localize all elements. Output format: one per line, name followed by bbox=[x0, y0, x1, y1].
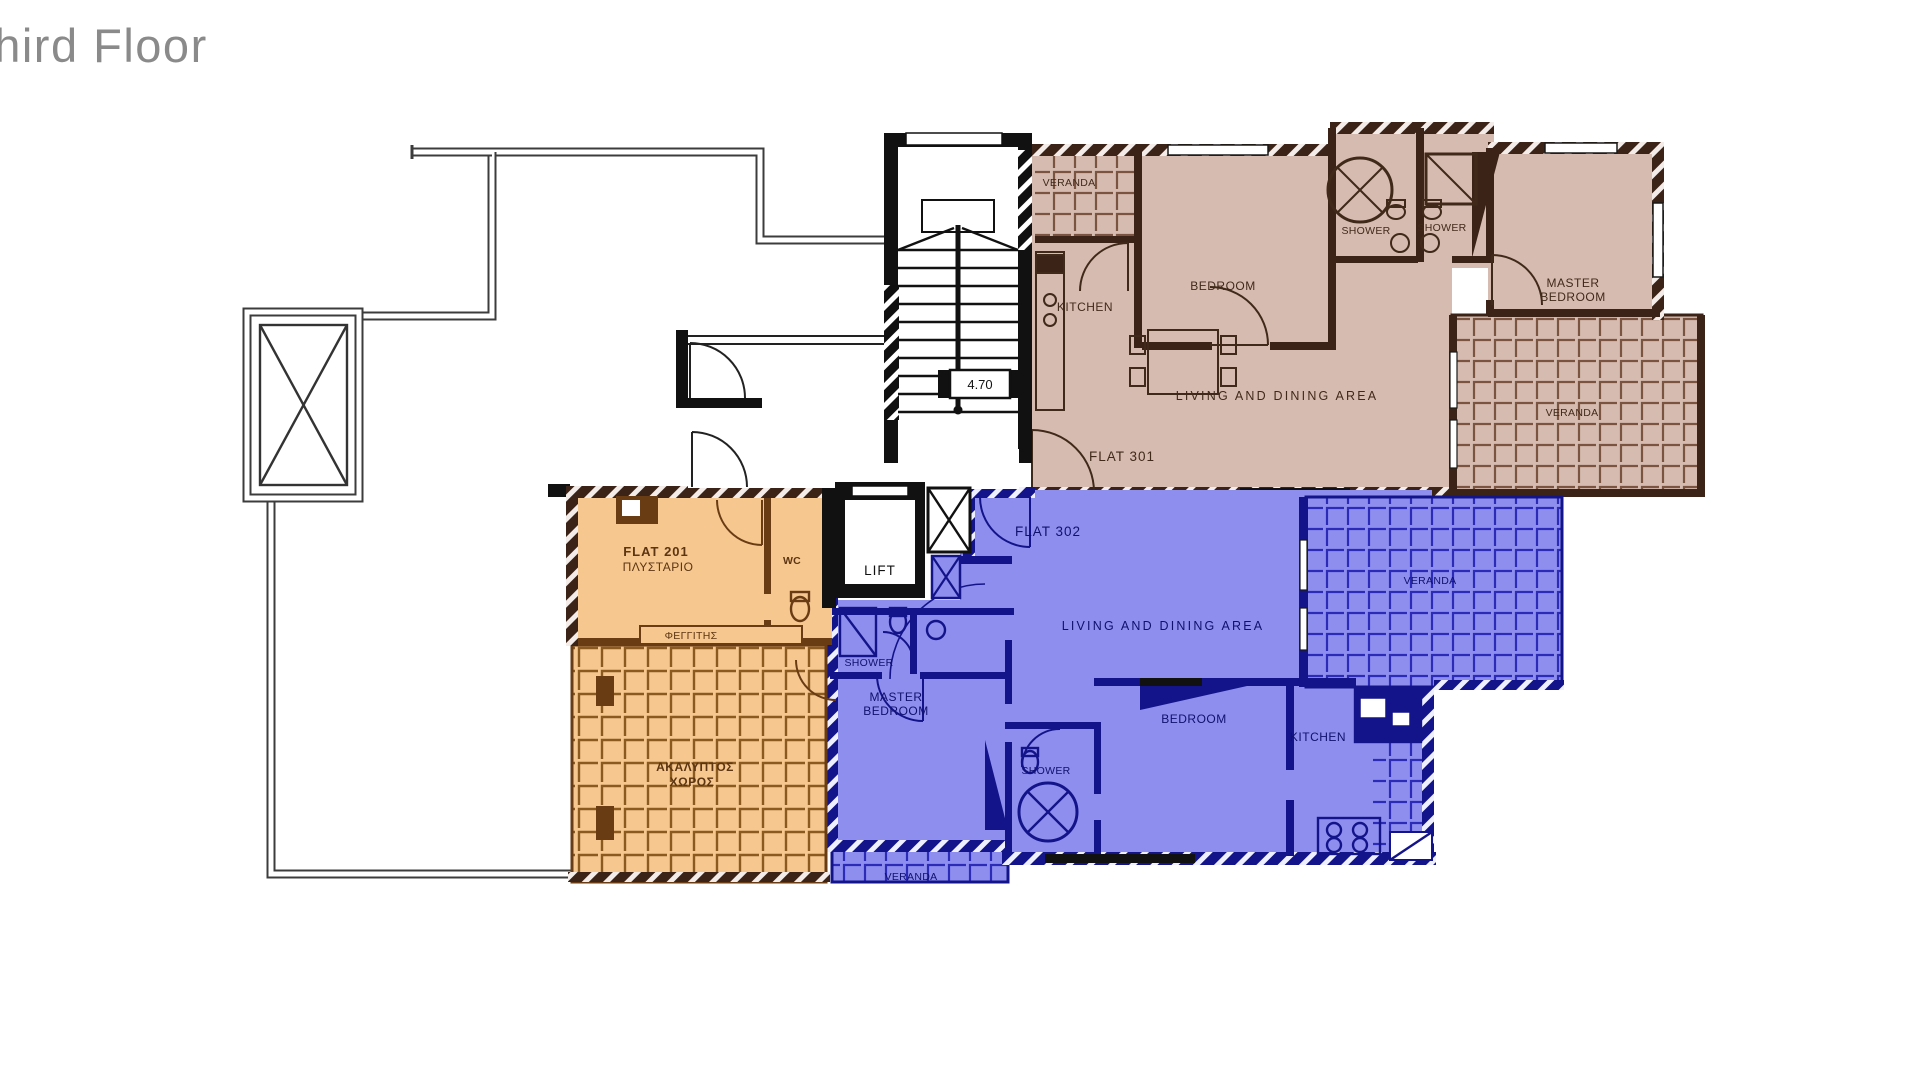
flat302-veranda-right-tiles bbox=[1306, 497, 1562, 687]
flat301-bedroom-label: BEDROOM bbox=[1190, 279, 1256, 293]
window bbox=[1450, 420, 1457, 468]
flat302-bedroom-label: BEDROOM bbox=[1161, 712, 1227, 726]
flat302-shower-top-label: SHOWER bbox=[844, 657, 893, 669]
corridor bbox=[688, 340, 884, 488]
flat-201: FLAT 201 ΠΛΥΣΤΑΡΙΟ WC ΦΕΓΓΙΤΗΣ ΑΚΑΛΥΠΤΟΣ… bbox=[548, 484, 836, 882]
flat301-veranda-right-label: VERANDA bbox=[1546, 407, 1599, 419]
flat201-wall bbox=[566, 486, 578, 646]
corridor-wall bbox=[676, 330, 688, 408]
window bbox=[1653, 203, 1663, 277]
flat302-partition bbox=[830, 672, 882, 679]
flat201-name-label-2: ΠΛΥΣΤΑΡΙΟ bbox=[623, 560, 694, 574]
flat201-open-area-label-1: ΑΚΑΛΥΠΤΟΣ bbox=[656, 760, 734, 774]
flat302-kitchen-label: KITCHEN bbox=[1290, 730, 1346, 744]
window bbox=[1168, 145, 1268, 155]
lift-label: LIFT bbox=[864, 563, 896, 578]
flat201-open-area-label-2: ΧΩΡΟΣ bbox=[670, 775, 715, 789]
flat301-master-label-1: MASTER bbox=[1546, 276, 1599, 290]
flat302-living-label: LIVING AND DINING AREA bbox=[1062, 619, 1265, 633]
window bbox=[1545, 143, 1617, 153]
flat301-living-label: LIVING AND DINING AREA bbox=[1176, 389, 1379, 403]
flat301-name-label: FLAT 301 bbox=[1089, 449, 1155, 464]
flat201-wc-label: WC bbox=[783, 555, 801, 567]
flat301-shower-right-label: SHOWER bbox=[1417, 222, 1466, 234]
flat302-wall bbox=[826, 840, 1012, 852]
flat302-veranda-bottom-label: VERANDA bbox=[885, 871, 938, 883]
stair-dimension-label: 4.70 bbox=[967, 377, 992, 392]
flat301-shower-left-label: SHOWER bbox=[1341, 225, 1390, 237]
lift-door bbox=[852, 486, 908, 496]
flat201-skylight-label: ΦΕΓΓΙΤΗΣ bbox=[665, 630, 718, 642]
outline-top-run bbox=[492, 152, 884, 240]
flat301-wall bbox=[1330, 122, 1494, 134]
flat201-body bbox=[572, 492, 832, 645]
flat301-veranda-right-tiles bbox=[1452, 315, 1702, 495]
window-band bbox=[1045, 854, 1195, 863]
stair-window bbox=[906, 133, 1002, 145]
flat-301: VERANDA KITCHEN BEDROOM SHOWER SHOWER MA… bbox=[1030, 122, 1705, 498]
flat301-partition bbox=[1134, 150, 1142, 348]
flat201-partition bbox=[764, 498, 771, 594]
outline-bottom-run bbox=[271, 496, 572, 874]
flat302-name-label: FLAT 302 bbox=[1015, 524, 1081, 539]
flat302-master-label-2: BEDROOM bbox=[863, 704, 929, 718]
page-title: Third Floor bbox=[0, 18, 208, 73]
flat301-veranda-top-tiles bbox=[1035, 155, 1138, 240]
flat201-name-label-1: FLAT 201 bbox=[623, 544, 689, 559]
outline-left-run bbox=[358, 152, 492, 316]
floor-plan-page: VERANDA KITCHEN BEDROOM SHOWER SHOWER MA… bbox=[0, 0, 1920, 1080]
flat301-veranda-top-label: VERANDA bbox=[1043, 177, 1096, 189]
flat301-kitchen-label: KITCHEN bbox=[1057, 300, 1113, 314]
window bbox=[1300, 608, 1307, 650]
flat302-wall bbox=[1434, 680, 1564, 690]
window bbox=[1450, 352, 1457, 408]
window bbox=[1300, 540, 1307, 590]
flat302-veranda-right-label: VERANDA bbox=[1404, 575, 1457, 587]
flat301-master-label-2: BEDROOM bbox=[1540, 290, 1606, 304]
floor-plan-drawing: VERANDA KITCHEN BEDROOM SHOWER SHOWER MA… bbox=[0, 0, 1920, 1080]
flat302-master-label-1: MASTER bbox=[869, 690, 922, 704]
flat302-shower-mid-label: SHOWER bbox=[1021, 765, 1070, 777]
